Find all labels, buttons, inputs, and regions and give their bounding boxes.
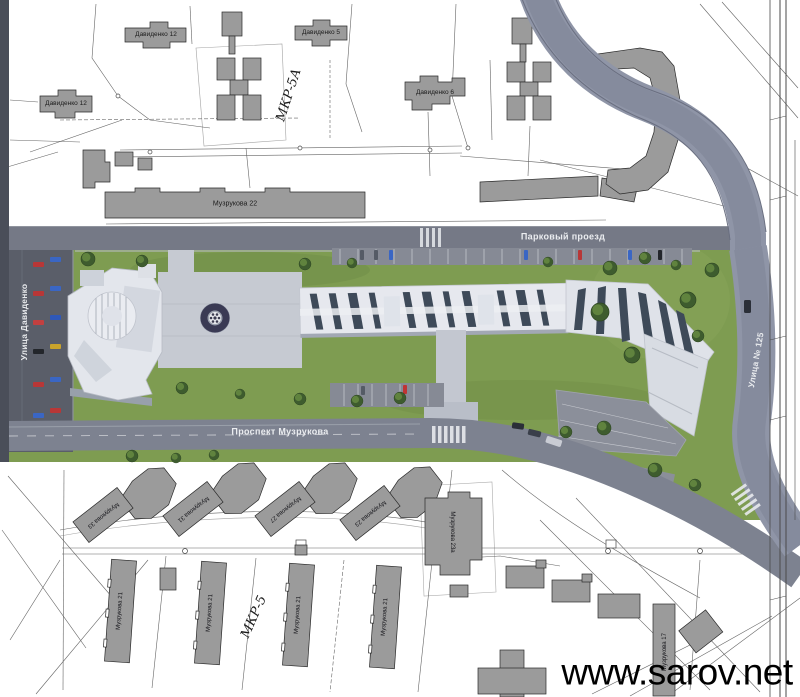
parking-south (330, 383, 444, 407)
site-plan-svg (0, 0, 800, 697)
building-muzrukova17 (653, 604, 675, 696)
fountain (200, 303, 230, 333)
left-edge-strip (0, 0, 9, 462)
parking-north (332, 248, 692, 265)
site-plan-image: Давиденко 12 Давиденко 5 Давиденко 12 Да… (0, 0, 800, 697)
gallery-building-west (300, 283, 569, 338)
street-davidenko-road (9, 226, 73, 452)
street-parkovy-road (9, 226, 749, 250)
building-muzrukova22 (105, 188, 365, 218)
tower-building (68, 264, 162, 406)
